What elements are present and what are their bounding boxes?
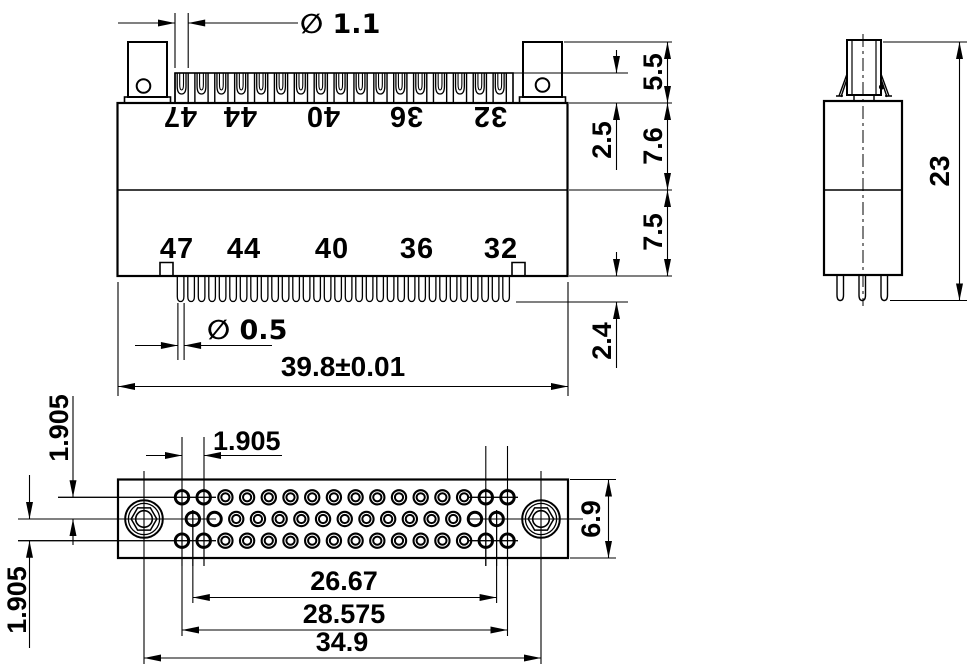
solder-pin bbox=[482, 276, 489, 302]
contact-hole-center bbox=[309, 494, 315, 500]
contact-slot-outer-u bbox=[475, 73, 484, 94]
contact-hole-center bbox=[396, 494, 402, 500]
dim-upper-body-height: 7.6 bbox=[638, 127, 668, 165]
dim-pin-protrusion: 2.4 bbox=[587, 322, 617, 360]
dimension-arrowhead bbox=[613, 56, 620, 73]
side-solder-pin bbox=[837, 275, 844, 301]
contact-hole-center bbox=[385, 516, 391, 522]
dim-lower-body-height: 7.5 bbox=[638, 213, 668, 251]
pin-label-lower-47: 47 bbox=[160, 233, 194, 265]
contact-slot-inner-u bbox=[219, 73, 223, 90]
contact-slot-inner-u bbox=[299, 73, 303, 90]
contact-hole-center bbox=[407, 516, 413, 522]
contact-slot-outer-u bbox=[296, 73, 305, 94]
contact-hole-center bbox=[244, 538, 250, 544]
dimension-arrowhead bbox=[956, 284, 963, 301]
contact-hole-center bbox=[287, 538, 293, 544]
contact-hole-center bbox=[320, 516, 326, 522]
contact-slot-inner-u bbox=[438, 73, 442, 90]
dim-tab-height: 5.5 bbox=[638, 53, 668, 91]
dimension-arrowhead bbox=[664, 190, 671, 207]
contact-slot-inner-u bbox=[379, 73, 383, 90]
contact-slot-outer-u bbox=[237, 73, 246, 94]
dimension-arrowhead bbox=[188, 20, 205, 27]
dimension-arrowhead bbox=[26, 502, 33, 519]
dimension-arrowhead bbox=[184, 342, 201, 349]
solder-pin bbox=[230, 276, 237, 302]
contact-slot-inner-u bbox=[359, 73, 363, 90]
contact-hole-center bbox=[439, 538, 445, 544]
mounting-tab-right-hole bbox=[536, 78, 550, 92]
dimension-arrowhead bbox=[605, 541, 612, 558]
dim-pin-diameter: ∅ 0.5 bbox=[207, 315, 287, 346]
solder-pin bbox=[272, 276, 279, 302]
contact-hole-center bbox=[439, 494, 445, 500]
contact-slot-inner-u bbox=[498, 73, 502, 90]
contact-hole-center bbox=[255, 516, 261, 522]
contact-hole-center bbox=[461, 494, 467, 500]
dimension-arrowhead bbox=[613, 259, 620, 276]
dimension-arrowhead bbox=[664, 103, 671, 120]
dim-outer-row-span: 28.575 bbox=[303, 599, 386, 629]
mounting-tab-left bbox=[128, 42, 167, 97]
solder-pin bbox=[366, 276, 373, 302]
contact-slot-inner-u bbox=[418, 73, 422, 90]
side-solder-pins bbox=[837, 275, 888, 301]
dim-slot-diameter: ∅ 1.1 bbox=[300, 9, 380, 40]
contact-slot-outer-u bbox=[316, 73, 325, 94]
contact-hole-center bbox=[309, 538, 315, 544]
contact-slot-inner-u bbox=[239, 73, 243, 90]
solder-pin bbox=[261, 276, 268, 302]
contact-slot-outer-u bbox=[495, 73, 504, 94]
contact-hole-center bbox=[353, 494, 359, 500]
contact-slot-outer-u bbox=[356, 73, 365, 94]
contact-hole-grid bbox=[18, 488, 583, 566]
dim-contact-recess: 2.5 bbox=[587, 121, 617, 159]
dim-row-pitch-lower: 1.905 bbox=[2, 566, 32, 634]
solder-pin bbox=[209, 276, 216, 302]
dimension-arrowhead bbox=[165, 452, 182, 459]
labels: 47 44 40 36 32 47 44 40 36 32 ∅ 1.1 ∅ 0.… bbox=[2, 9, 955, 657]
solder-pin bbox=[503, 276, 510, 302]
contact-slot-outer-u bbox=[197, 73, 206, 94]
contact-hole-center bbox=[233, 516, 239, 522]
solder-pin bbox=[356, 276, 363, 302]
dimension-arrowhead bbox=[70, 519, 77, 536]
contact-hole-center bbox=[396, 538, 402, 544]
solder-pin bbox=[198, 276, 205, 302]
solder-pin bbox=[240, 276, 247, 302]
solder-pin bbox=[450, 276, 457, 302]
dimension-arrowhead bbox=[613, 302, 620, 319]
contact-slot-outer-u bbox=[217, 73, 226, 94]
solder-pin bbox=[303, 276, 310, 302]
contact-slot-inner-u bbox=[478, 73, 482, 90]
pin-label-upper-47: 47 bbox=[163, 100, 197, 132]
contact-hole-center bbox=[418, 538, 424, 544]
dimension-arrowhead bbox=[70, 480, 77, 497]
contact-slot-inner-u bbox=[259, 73, 263, 90]
mounting-tab-right bbox=[523, 42, 562, 97]
contact-slot-inner-u bbox=[458, 73, 462, 90]
solder-pin bbox=[461, 276, 468, 302]
contact-hole-center bbox=[461, 538, 467, 544]
solder-pin bbox=[188, 276, 195, 302]
contact-hole-center bbox=[266, 494, 272, 500]
dimension-arrowhead bbox=[182, 627, 199, 634]
solder-pin bbox=[492, 276, 499, 302]
solder-pin bbox=[335, 276, 342, 302]
side-tab-walls bbox=[852, 40, 876, 95]
solder-pin bbox=[282, 276, 289, 302]
dimension-arrowhead bbox=[664, 259, 671, 276]
solder-pin bbox=[419, 276, 426, 302]
solder-pin bbox=[177, 276, 184, 302]
pin-label-upper-32: 32 bbox=[473, 100, 507, 132]
contact-hole-center bbox=[363, 516, 369, 522]
solder-pin bbox=[398, 276, 405, 302]
contact-hole-center bbox=[418, 494, 424, 500]
dim-row-pitch-upper: 1.905 bbox=[44, 394, 74, 462]
solder-pin bbox=[471, 276, 478, 302]
contact-hole-center bbox=[222, 494, 228, 500]
solder-pin bbox=[440, 276, 447, 302]
side-solder-pin bbox=[859, 275, 866, 301]
contact-hole-center bbox=[374, 538, 380, 544]
contact-hole-center bbox=[331, 538, 337, 544]
dimension-arrowhead bbox=[956, 42, 963, 59]
contact-hole-center bbox=[244, 494, 250, 500]
dimension-arrowhead bbox=[524, 655, 541, 662]
dimension-arrowhead bbox=[161, 342, 178, 349]
contact-slot-inner-u bbox=[319, 73, 323, 90]
pin-label-lower-44: 44 bbox=[227, 233, 261, 265]
contact-slot-inner-u bbox=[339, 73, 343, 90]
pin-label-lower-36: 36 bbox=[400, 233, 434, 265]
dim-mount-span: 34.9 bbox=[316, 627, 369, 657]
pin-label-lower-40: 40 bbox=[315, 233, 349, 265]
dimension-arrowhead bbox=[144, 655, 161, 662]
solder-pin bbox=[293, 276, 300, 302]
contact-hole-center bbox=[277, 516, 283, 522]
contact-hole-center bbox=[222, 538, 228, 544]
contact-hole-center bbox=[428, 516, 434, 522]
dim-face-height: 6.9 bbox=[576, 500, 606, 538]
contact-slot-inner-u bbox=[180, 73, 184, 90]
dimension-arrowhead bbox=[664, 173, 671, 190]
contact-slot-inner-u bbox=[279, 73, 283, 90]
mounting-tab-left-hole bbox=[137, 79, 151, 93]
dimension-arrowhead bbox=[551, 383, 568, 390]
dim-overall-width: 39.8±0.01 bbox=[281, 351, 405, 382]
dimension-arrowhead bbox=[613, 103, 620, 120]
contact-slot-outer-u bbox=[336, 73, 345, 94]
contact-hole-center bbox=[298, 516, 304, 522]
pin-label-upper-36: 36 bbox=[389, 100, 423, 132]
contact-slot-row bbox=[175, 73, 513, 103]
connector-drawing: 47 44 40 36 32 47 44 40 36 32 ∅ 1.1 ∅ 0.… bbox=[0, 0, 970, 669]
contact-slot-outer-u bbox=[436, 73, 445, 94]
pin-label-lower-32: 32 bbox=[484, 233, 518, 265]
dimension-arrowhead bbox=[491, 627, 508, 634]
solder-pin-row bbox=[177, 276, 509, 302]
dim-middle-row-span: 26.67 bbox=[310, 566, 378, 596]
technical-drawing-page: 47 44 40 36 32 47 44 40 36 32 ∅ 1.1 ∅ 0.… bbox=[0, 0, 970, 669]
dimension-arrowhead bbox=[118, 383, 135, 390]
pin-label-upper-40: 40 bbox=[306, 100, 340, 132]
dimension-arrowhead bbox=[605, 480, 612, 497]
pin-label-upper-44: 44 bbox=[223, 100, 257, 132]
solder-pin bbox=[387, 276, 394, 302]
side-solder-pin bbox=[881, 275, 888, 301]
dim-overall-height: 23 bbox=[924, 155, 955, 186]
dimension-arrowhead bbox=[158, 20, 175, 27]
solder-pin bbox=[377, 276, 384, 302]
contact-hole-center bbox=[450, 516, 456, 522]
solder-pin bbox=[408, 276, 415, 302]
contact-hole-center bbox=[374, 494, 380, 500]
dimension-arrowhead bbox=[26, 541, 33, 558]
contact-slot-outer-u bbox=[416, 73, 425, 94]
contact-slot-outer-u bbox=[277, 73, 286, 94]
solder-pin bbox=[219, 276, 226, 302]
contact-slot-outer-u bbox=[177, 73, 186, 94]
solder-pin bbox=[345, 276, 352, 302]
solder-pin bbox=[251, 276, 258, 302]
contact-slot-outer-u bbox=[396, 73, 405, 94]
solder-pin bbox=[429, 276, 436, 302]
solder-pin bbox=[314, 276, 321, 302]
contact-hole-center bbox=[287, 494, 293, 500]
dim-hole-pitch: 1.905 bbox=[213, 426, 281, 456]
contact-hole-center bbox=[331, 494, 337, 500]
contact-hole-center bbox=[342, 516, 348, 522]
contact-slot-outer-u bbox=[376, 73, 385, 94]
contact-slot-inner-u bbox=[200, 73, 204, 90]
contact-slot-outer-u bbox=[456, 73, 465, 94]
contact-slot-outer-u bbox=[257, 73, 266, 94]
contact-hole-center bbox=[353, 538, 359, 544]
dimension-arrowhead bbox=[480, 594, 497, 601]
dimension-arrowhead bbox=[193, 594, 210, 601]
contact-slot-inner-u bbox=[398, 73, 402, 90]
clip-rivet-dot bbox=[879, 84, 884, 89]
solder-pin bbox=[324, 276, 331, 302]
contact-hole-center bbox=[266, 538, 272, 544]
